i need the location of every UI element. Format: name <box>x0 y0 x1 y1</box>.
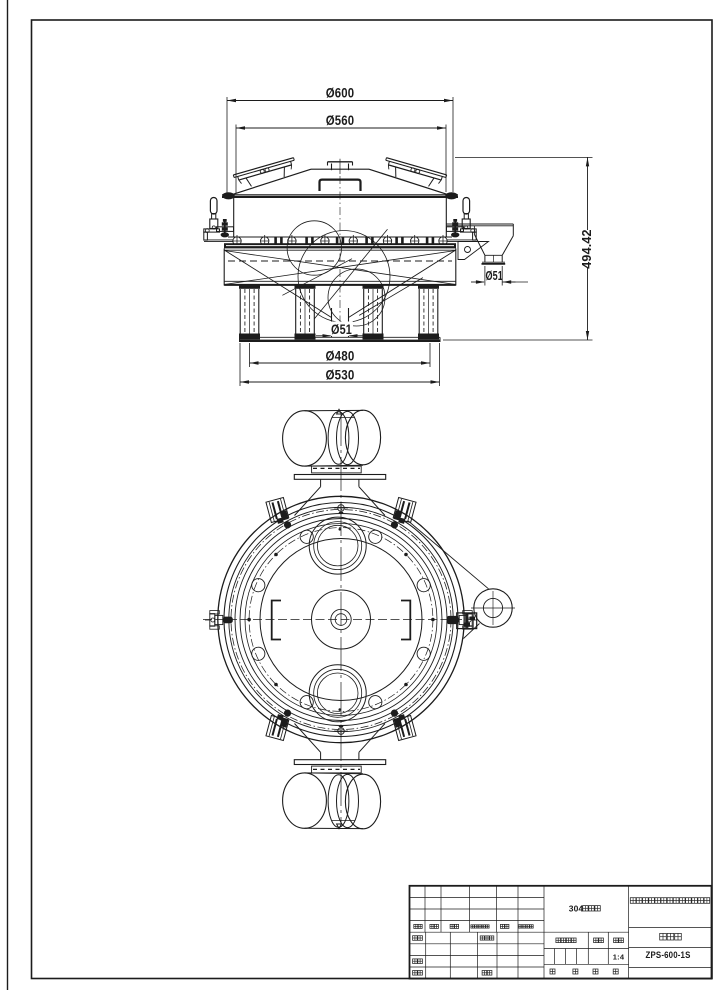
svg-text:Ø480: Ø480 <box>326 348 355 364</box>
svg-text:304: 304 <box>569 904 584 914</box>
svg-text:Ø51: Ø51 <box>331 322 352 337</box>
svg-text:494.42: 494.42 <box>580 229 594 268</box>
svg-text:Ø51: Ø51 <box>485 268 503 283</box>
svg-text:1:4: 1:4 <box>613 952 625 961</box>
svg-text:ZPS-600-1S: ZPS-600-1S <box>646 950 691 961</box>
svg-text:Ø560: Ø560 <box>326 112 355 128</box>
svg-text:Ø530: Ø530 <box>326 367 355 383</box>
svg-text:Ø600: Ø600 <box>326 85 355 101</box>
